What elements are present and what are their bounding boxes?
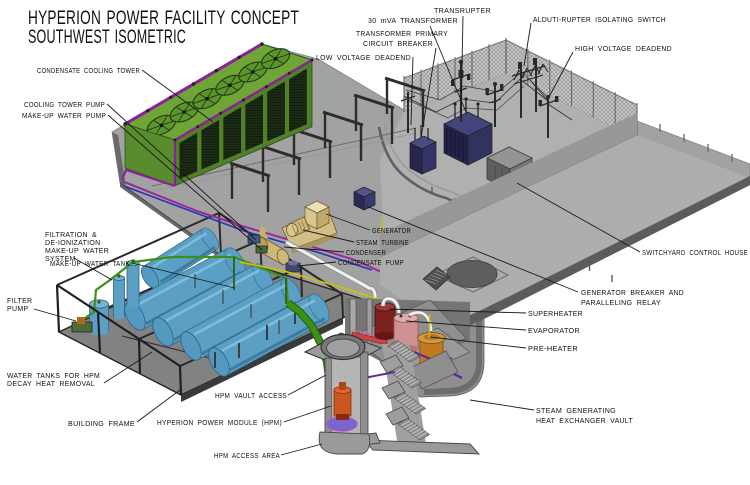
svg-text:PARALLELING RELAY: PARALLELING RELAY [581,300,661,307]
svg-text:FILTRATION &: FILTRATION & [45,232,97,239]
svg-text:EVAPORATOR: EVAPORATOR [528,328,580,335]
svg-text:COOLING TOWER PUMP: COOLING TOWER PUMP [24,102,105,109]
svg-text:HPM ACCESS AREA: HPM ACCESS AREA [214,453,280,460]
svg-text:CONDENSATE PUMP: CONDENSATE PUMP [338,260,404,267]
svg-text:PRE-HEATER: PRE-HEATER [528,346,578,353]
svg-text:TRANSRUPTER: TRANSRUPTER [434,8,491,15]
svg-text:GENERATOR BREAKER AND: GENERATOR BREAKER AND [581,290,684,297]
svg-text:30 mVA TRANSFORMER: 30 mVA TRANSFORMER [368,18,458,25]
svg-text:CONDENSATE COOLING TOWER: CONDENSATE COOLING TOWER [37,68,140,75]
svg-text:HYPERION POWER FACILITY CON: HYPERION POWER FACILITY CONCEPT [28,8,299,29]
svg-text:DECAY HEAT REMOVAL: DECAY HEAT REMOVAL [7,381,95,388]
svg-text:SYSTEM: SYSTEM [45,256,76,263]
svg-text:DE-IONIZATION: DE-IONIZATION [45,240,101,247]
svg-text:MAKE-UP WATER: MAKE-UP WATER [45,248,109,255]
svg-text:SUPERHEATER: SUPERHEATER [528,311,583,318]
svg-text:GENERATOR: GENERATOR [372,228,411,235]
svg-text:STEAM TURBINE: STEAM TURBINE [356,240,409,247]
svg-text:HYPERION POWER MODULE (HPM): HYPERION POWER MODULE (HPM) [157,420,282,427]
svg-text:CONDENSER: CONDENSER [346,250,386,257]
svg-text:HPM VAULT ACCESS: HPM VAULT ACCESS [215,393,287,400]
svg-text:CIRCUIT BREAKER: CIRCUIT BREAKER [363,41,433,48]
svg-text:SOUTHWEST ISOMETRIC: SOUTHWEST ISOMETRIC [28,27,186,48]
svg-text:ALDUTI-RUPTER ISOLATING SWITCH: ALDUTI-RUPTER ISOLATING SWITCH [533,17,666,24]
svg-text:TRANSFORMER PRIMARY: TRANSFORMER PRIMARY [356,31,448,38]
svg-text:BUILDING FRAME: BUILDING FRAME [68,421,135,428]
svg-text:LOW VOLTAGE DEADEND: LOW VOLTAGE DEADEND [316,55,411,62]
svg-text:WATER TANKS FOR HPM: WATER TANKS FOR HPM [7,373,100,380]
svg-text:STEAM GENERATING: STEAM GENERATING [536,408,616,415]
svg-text:PUMP: PUMP [7,306,28,313]
svg-text:MAKE-UP WATER PUMP: MAKE-UP WATER PUMP [22,113,106,120]
svg-text:FILTER: FILTER [7,298,32,305]
svg-text:HEAT EXCHANGER VAULT: HEAT EXCHANGER VAULT [536,418,633,425]
svg-text:HIGH VOLTAGE DEADEND: HIGH VOLTAGE DEADEND [575,46,672,53]
svg-text:SWITCHYARD CONTROL HOUSE: SWITCHYARD CONTROL HOUSE [642,250,748,257]
